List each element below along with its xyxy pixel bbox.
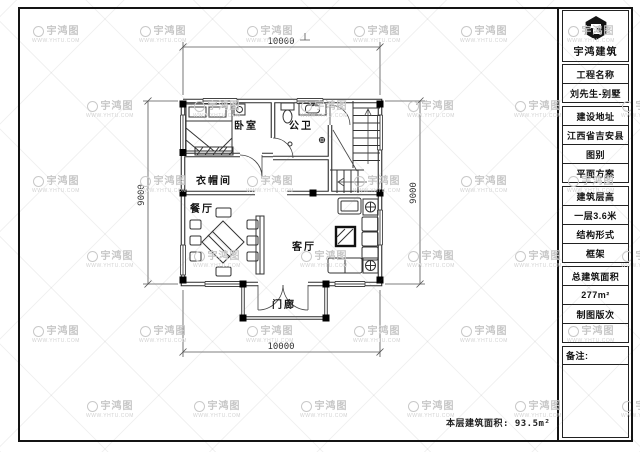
dim-bottom: 10000 [267,342,294,352]
room-label-dining: 餐厅 [189,202,214,215]
room-label-bathroom: 公卫 [289,120,313,132]
title-block-row-text: 江西省吉安县 [567,129,624,142]
room-label-cloakroom: 衣帽间 [196,174,232,187]
title-block-row: 277m² [562,285,629,305]
title-block-row-text: 建设地址 [576,110,614,123]
title-block-row: 一层3.6米 [562,205,629,225]
company-logo-icon [583,15,609,41]
title-block-row-text: 一层3.6米 [574,209,617,222]
room-label-living: 客厅 [291,240,316,253]
title-block-row-text: 建筑层高 [576,190,614,203]
title-block-row-text: 框架 [586,247,605,260]
title-block-rows: 工程名称 刘先生-别墅 建设地址 江西省吉安县 图别 [562,65,629,438]
dim-top: 10000 [267,37,294,47]
title-block-row: 制图版次 [562,304,629,324]
dim-right: 9000 [409,182,419,204]
title-block-row: 江西省吉安县 [562,125,629,145]
title-block-row-text: 平面方案 [576,167,614,180]
title-block-row-text: 277m² [581,290,610,300]
dim-left: 9000 [137,184,147,206]
company-logo-cell: 宇鸿建筑 [562,10,629,62]
title-block-row-text: 备注: [566,349,589,362]
title-block-row: 总建筑面积 [562,266,629,286]
title-block-row-text: 总建筑面积 [572,270,620,283]
doors [240,105,350,310]
title-block-row-text: 制图版次 [576,308,614,321]
title-block-row: 建筑层高 [562,186,629,206]
title-block-row: 图别 [562,144,629,164]
floor-plan-svg: 10000 10000 9000 9000 [0,0,640,452]
title-block-row: 刘先生-别墅 [562,83,629,103]
title-block-row-text: 图别 [586,148,605,161]
title-block-row-text: 工程名称 [576,68,614,81]
title-block-row: 框架 [562,243,629,263]
drawing-sheet: 宇鸿图WWW.YHTU.COM宇鸿图WWW.YHTU.COM宇鸿图WWW.YHT… [0,0,640,452]
title-block: 宇鸿建筑 工程名称 刘先生-别墅 建设地址 江西省吉安县 [557,9,631,440]
dining-table [190,208,258,276]
title-block-row [562,323,629,343]
title-block-row: 建设地址 [562,106,629,126]
title-block-row [562,364,629,438]
title-block-row: 备注: [562,346,629,365]
living-furniture [328,198,378,273]
room-label-porch: 门廊 [272,298,296,311]
company-name: 宇鸿建筑 [574,43,618,58]
title-block-row-text: 刘先生-别墅 [570,87,621,100]
title-block-row: 结构形式 [562,224,629,244]
floor-area-note: 本层建筑面积: 93.5m² [446,416,550,429]
room-label-bedroom: 卧室 [234,119,258,132]
stairs [330,101,380,193]
title-block-row: 工程名称 [562,64,629,84]
title-block-row: 平面方案 [562,163,629,183]
title-block-row-text: 结构形式 [576,228,614,241]
